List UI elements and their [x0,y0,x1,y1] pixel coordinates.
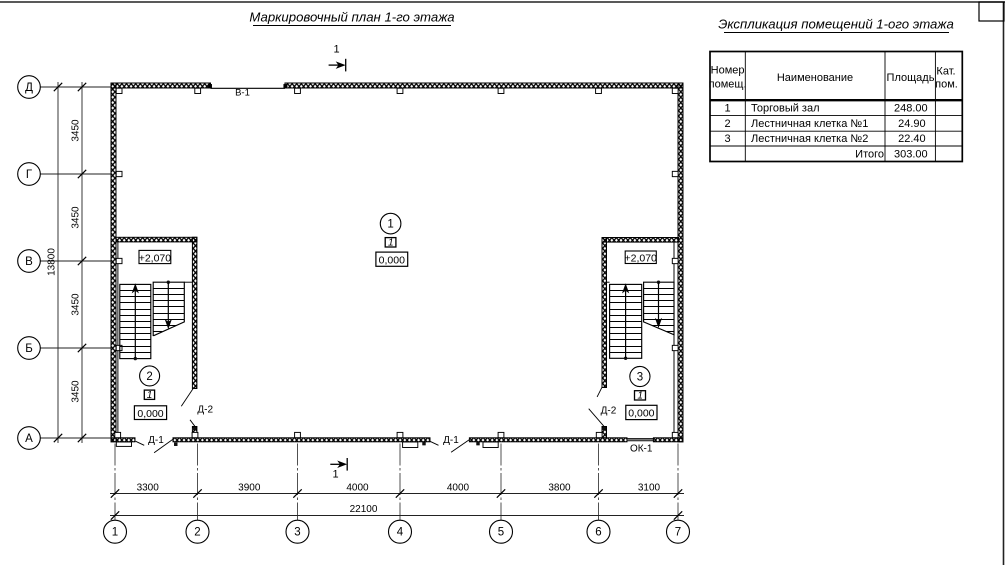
svg-text:1: 1 [387,219,393,231]
svg-text:Номер: Номер [711,65,745,77]
svg-text:В: В [25,256,33,268]
svg-text:1: 1 [637,391,643,402]
svg-text:1: 1 [332,469,338,481]
svg-text:Лестничная клетка №1: Лестничная клетка №1 [751,118,868,130]
svg-text:5: 5 [498,527,504,539]
svg-text:Наименование: Наименование [777,72,853,84]
svg-text:22.40: 22.40 [898,133,926,145]
svg-text:4000: 4000 [447,483,470,494]
svg-text:1: 1 [333,44,339,56]
svg-text:ОК-1: ОК-1 [630,444,653,455]
svg-text:Д-2: Д-2 [197,405,213,416]
svg-text:303.00: 303.00 [894,148,928,160]
svg-text:3: 3 [725,133,731,145]
svg-text:4000: 4000 [346,483,369,494]
svg-text:0,000: 0,000 [137,408,163,420]
svg-text:Б: Б [25,343,33,355]
svg-text:4: 4 [397,527,404,539]
svg-text:+2,070: +2,070 [139,252,172,264]
svg-text:3: 3 [637,372,643,384]
svg-text:3450: 3450 [71,206,82,229]
svg-text:Площадь: Площадь [887,72,935,84]
svg-text:3800: 3800 [548,483,571,494]
svg-text:+2,070: +2,070 [624,252,657,264]
svg-text:Итого: Итого [855,148,884,160]
svg-text:Д-2: Д-2 [601,406,617,417]
svg-text:3450: 3450 [71,293,82,316]
svg-text:Д-1: Д-1 [148,435,164,446]
svg-text:3300: 3300 [137,483,160,494]
svg-text:13800: 13800 [47,248,58,276]
svg-text:1: 1 [147,390,153,401]
svg-text:6: 6 [595,527,601,539]
svg-text:24.90: 24.90 [898,118,926,130]
svg-text:В-1: В-1 [235,88,250,99]
svg-text:2: 2 [725,118,731,130]
svg-text:22100: 22100 [350,504,378,515]
svg-text:Торговый зал: Торговый зал [751,103,820,115]
svg-text:1: 1 [725,103,731,115]
svg-text:Лестничная клетка №2: Лестничная клетка №2 [751,133,868,145]
svg-text:Д: Д [25,82,33,94]
svg-text:0,000: 0,000 [628,408,654,420]
svg-text:1: 1 [388,238,394,249]
svg-text:пом.: пом. [935,79,958,91]
svg-text:3900: 3900 [238,483,261,494]
svg-text:Экспликация помещений 1-ого эт: Экспликация помещений 1-ого этажа [718,17,954,32]
svg-text:помещ.: помещ. [709,79,747,91]
svg-text:2: 2 [146,371,152,383]
svg-text:248.00: 248.00 [894,103,928,115]
svg-text:2: 2 [194,527,200,539]
svg-text:А: А [25,433,33,445]
svg-text:3100: 3100 [638,483,661,494]
svg-text:0,000: 0,000 [379,254,405,266]
svg-text:Г: Г [26,169,33,181]
svg-text:3450: 3450 [71,119,82,142]
svg-text:1: 1 [112,527,118,539]
svg-text:7: 7 [675,527,681,539]
svg-text:3: 3 [294,527,300,539]
svg-text:Д-1: Д-1 [443,435,459,446]
svg-text:Кат.: Кат. [936,66,955,78]
svg-text:Маркировочный план 1-го этажа: Маркировочный план 1-го этажа [249,10,454,25]
svg-text:3450: 3450 [71,380,82,403]
